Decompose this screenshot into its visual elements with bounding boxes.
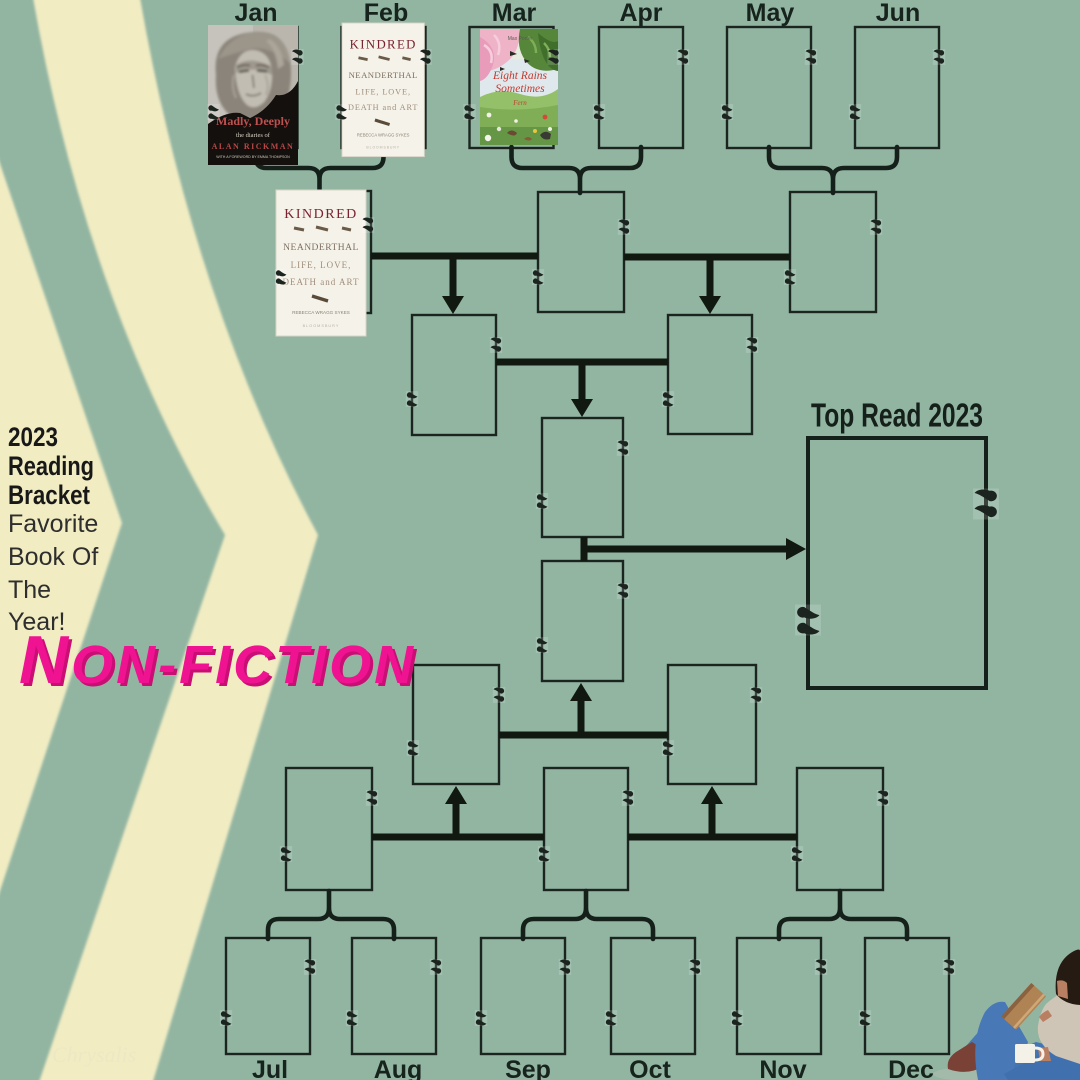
svg-text:Mar: Mar [492, 0, 537, 27]
svg-text:DEATH and ART: DEATH and ART [283, 277, 360, 287]
svg-text:KINDRED: KINDRED [284, 207, 358, 222]
svg-text:Jan: Jan [234, 0, 277, 27]
svg-text:Bracket: Bracket [8, 480, 90, 510]
svg-text:KINDRED: KINDRED [350, 38, 417, 52]
svg-text:Favorite: Favorite [8, 510, 98, 538]
svg-text:Chrysalis: Chrysalis [52, 1042, 136, 1067]
svg-text:Jul: Jul [252, 1056, 288, 1080]
svg-text:the diaries of: the diaries of [236, 132, 271, 139]
svg-text:Reading: Reading [8, 451, 94, 481]
svg-text:DEATH and ART: DEATH and ART [348, 103, 418, 112]
svg-text:Eight Rains: Eight Rains [492, 70, 548, 82]
svg-text:Max Porter: Max Porter [508, 36, 533, 42]
svg-text:Sep: Sep [505, 1056, 551, 1080]
svg-text:NEANDERTHAL: NEANDERTHAL [349, 70, 418, 80]
svg-text:Nov: Nov [759, 1056, 806, 1080]
svg-text:NEANDERTHAL: NEANDERTHAL [283, 243, 359, 253]
svg-text:The: The [8, 576, 51, 604]
svg-text:Jun: Jun [876, 0, 920, 27]
svg-text:Sometimes: Sometimes [495, 83, 545, 95]
svg-text:REBECCA WRAGG SYKES: REBECCA WRAGG SYKES [292, 310, 350, 315]
svg-text:Fern: Fern [512, 99, 527, 107]
svg-text:BLOOMSBURY: BLOOMSBURY [366, 145, 400, 149]
svg-text:REBECCA WRAGG SYKES: REBECCA WRAGG SYKES [357, 132, 410, 137]
svg-text:Madly, Deeply: Madly, Deeply [216, 114, 290, 128]
svg-text:BLOOMSBURY: BLOOMSBURY [303, 324, 340, 328]
svg-text:Book Of: Book Of [8, 543, 98, 571]
svg-text:May: May [746, 0, 795, 27]
svg-text:Apr: Apr [619, 0, 662, 27]
svg-text:Feb: Feb [364, 0, 408, 27]
svg-text:WITH A FOREWORD BY EMMA THOMPS: WITH A FOREWORD BY EMMA THOMPSON [216, 155, 290, 159]
svg-text:2023: 2023 [8, 422, 58, 452]
svg-text:LIFE, LOVE,: LIFE, LOVE, [355, 87, 411, 96]
svg-text:LIFE, LOVE,: LIFE, LOVE, [291, 260, 352, 270]
svg-text:Oct: Oct [629, 1056, 671, 1080]
svg-text:Dec: Dec [888, 1056, 934, 1080]
svg-text:Aug: Aug [374, 1056, 423, 1080]
svg-text:ALAN RICKMAN: ALAN RICKMAN [212, 142, 295, 151]
svg-text:Top Read 2023: Top Read 2023 [811, 396, 983, 434]
